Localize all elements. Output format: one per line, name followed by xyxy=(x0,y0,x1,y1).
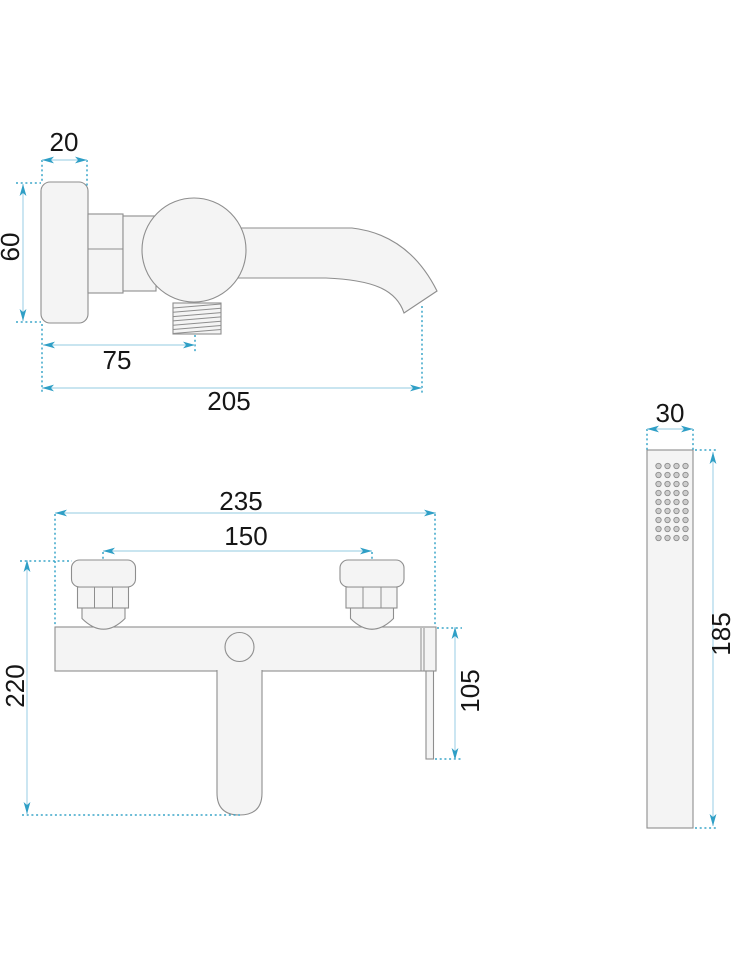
cartridge-knob-circle xyxy=(225,633,254,662)
dim-label-spout-reach: 205 xyxy=(207,388,250,414)
dim-label-body-width: 235 xyxy=(219,488,262,514)
mount-block-outline xyxy=(88,214,123,293)
front-spout-capsule xyxy=(217,670,262,815)
side-view-drawing xyxy=(41,182,437,334)
dim-label-plate-height: 60 xyxy=(0,233,23,262)
wall-connection-right xyxy=(340,560,404,629)
connection-escutcheon xyxy=(340,560,404,587)
connection-nut xyxy=(78,587,129,608)
dim-label-outlet-offset: 75 xyxy=(103,347,132,373)
wall-plate-outline xyxy=(41,182,88,323)
dim-label-plate-width: 20 xyxy=(50,129,79,155)
wall-connection-left xyxy=(72,560,136,629)
valve-body-circle xyxy=(142,198,246,302)
dimension-drawing-svg xyxy=(0,0,737,965)
technical-drawing-canvas: 20 60 75 205 235 150 220 105 30 185 xyxy=(0,0,737,965)
dim-label-total-height: 220 xyxy=(2,664,28,707)
shower-stick-body xyxy=(647,450,693,828)
dim-label-shower-length: 185 xyxy=(708,612,734,655)
connection-dome xyxy=(351,608,394,629)
dim-label-lever-drop: 105 xyxy=(457,669,483,712)
dim-label-shower-width: 30 xyxy=(656,400,685,426)
hand-shower-drawing xyxy=(647,450,693,828)
spout-outline xyxy=(238,228,437,313)
front-view-drawing xyxy=(55,560,436,815)
dim-label-connection-spacing: 150 xyxy=(224,523,267,549)
connection-dome xyxy=(82,608,125,629)
lever-handle-rod xyxy=(426,671,434,759)
connection-nut xyxy=(346,587,397,608)
shower-outlet-thread xyxy=(173,303,221,334)
connection-escutcheon xyxy=(72,560,136,587)
